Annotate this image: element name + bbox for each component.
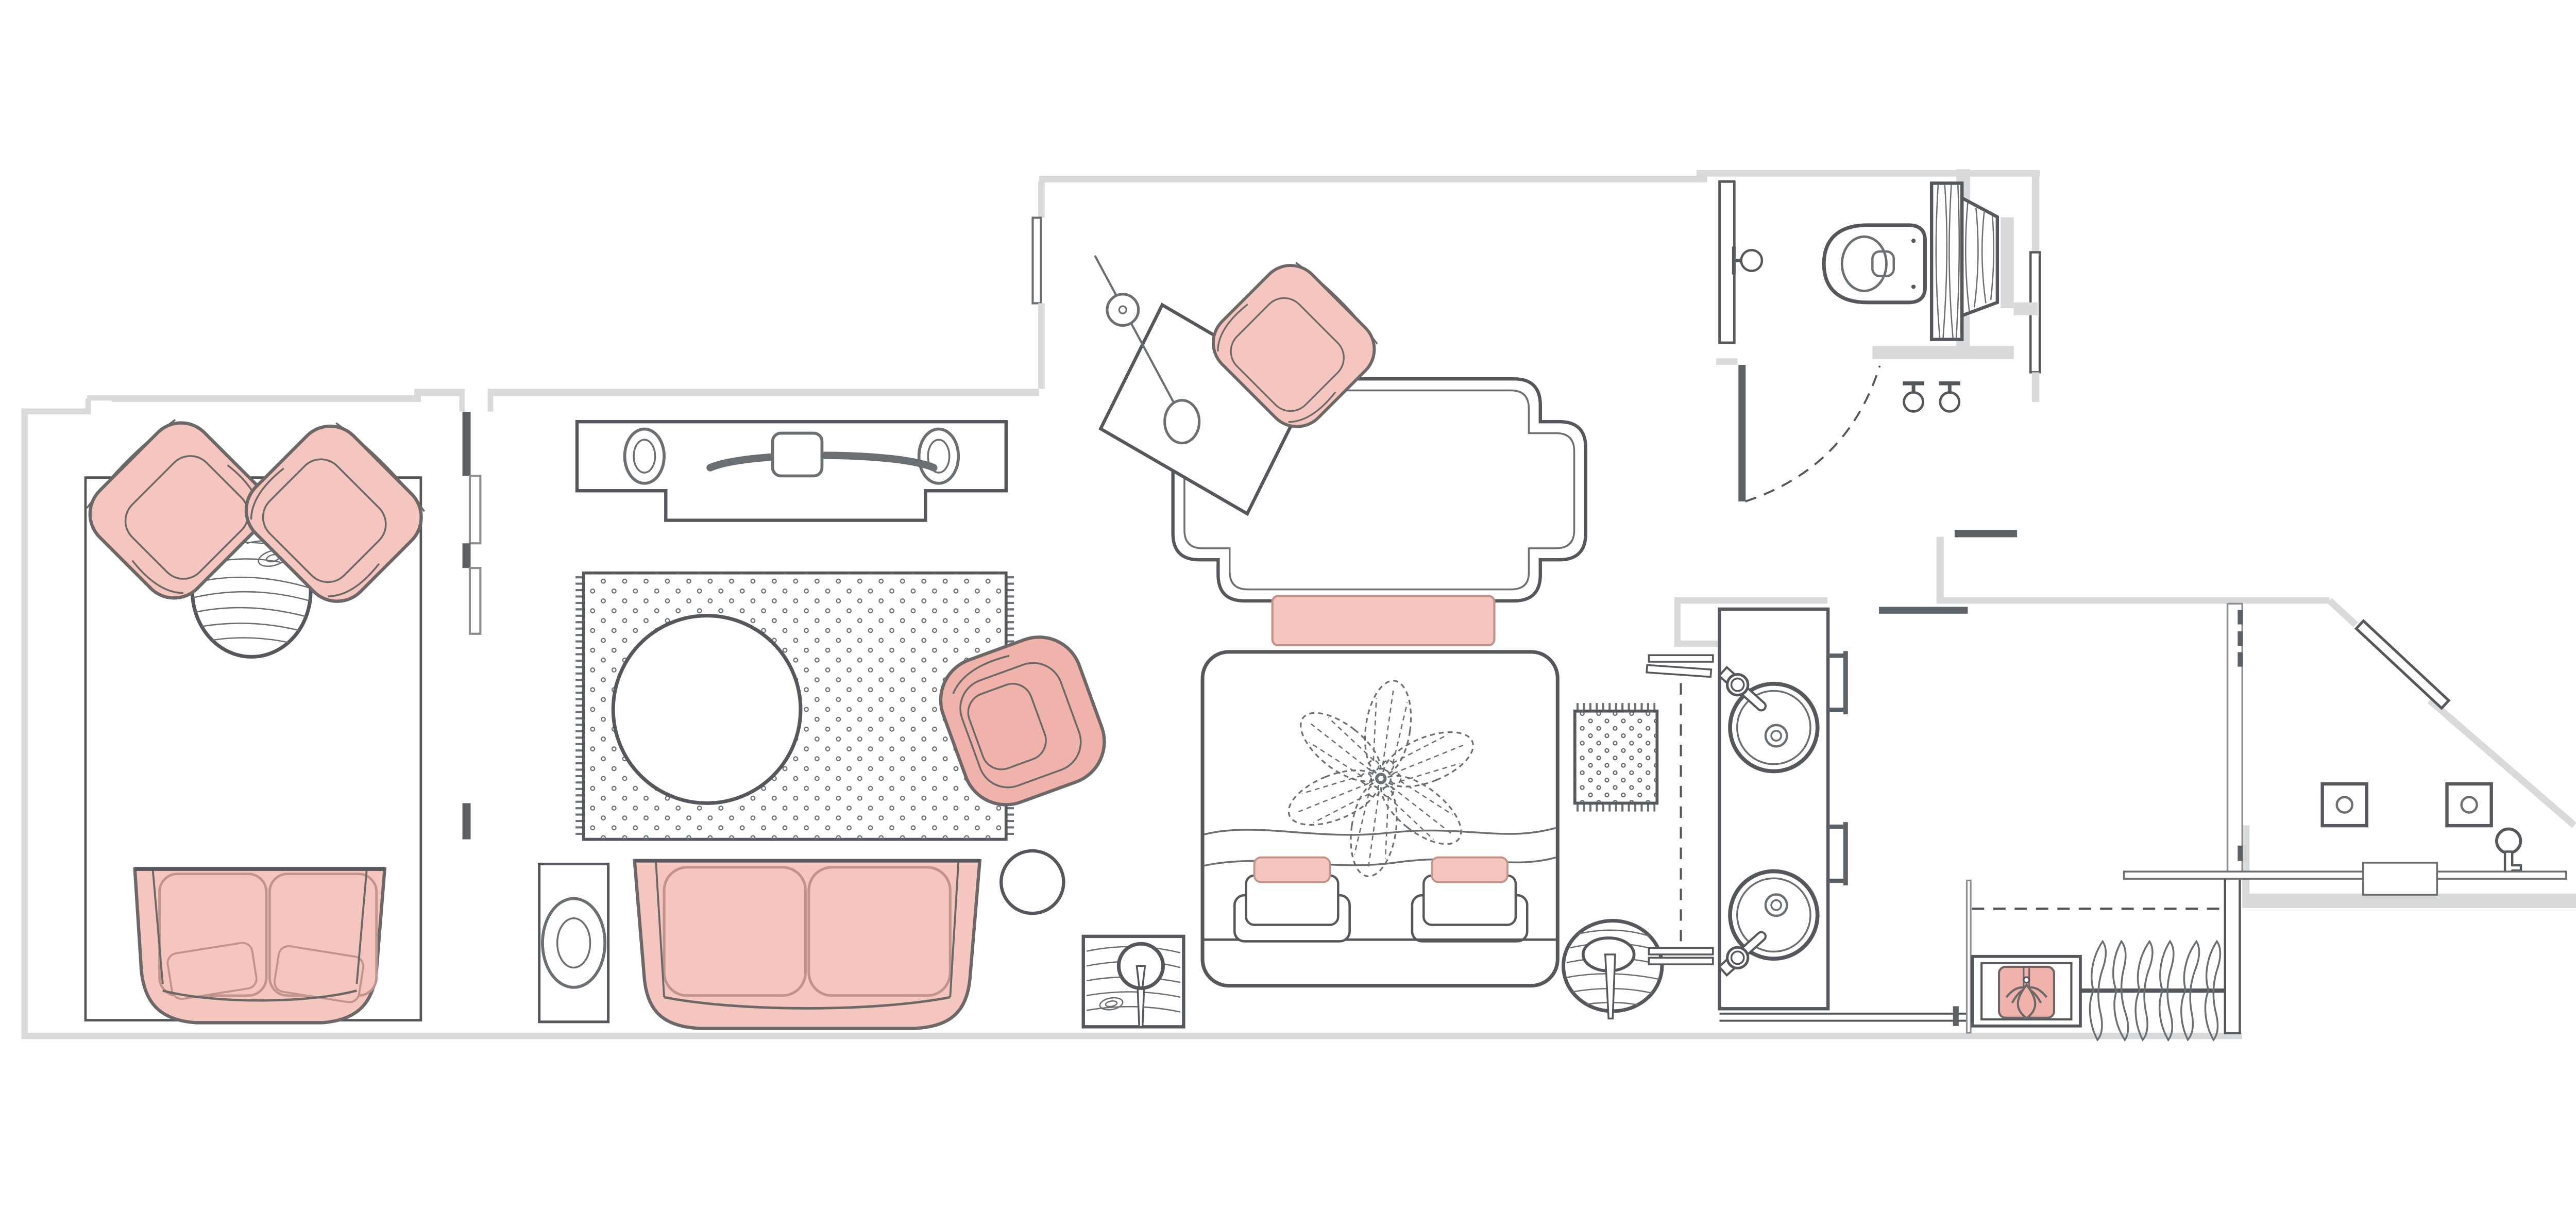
room-wc	[1720, 182, 1997, 502]
entry-door	[2356, 621, 2449, 708]
wall-patio-left	[21, 409, 27, 1040]
wall-shelf	[1649, 656, 1713, 662]
wall-entry-left	[2242, 826, 2249, 894]
side-table	[1001, 851, 1063, 913]
wall-nook-top	[1039, 176, 1697, 182]
entry-saddle	[2363, 863, 2437, 895]
door-leaf	[1738, 365, 1745, 501]
wc-door	[1738, 365, 1879, 501]
door-swing-arc	[1745, 366, 1880, 501]
wall-patio-top-left	[21, 409, 87, 414]
balcony-door-jamb-right	[488, 389, 494, 412]
wall-bed-right-stub	[1674, 604, 1681, 647]
accent-pillow	[1432, 858, 1507, 882]
partition-window-2	[470, 568, 480, 634]
nightstand-left	[1083, 936, 1184, 1027]
folded-shirt	[1999, 967, 2054, 1018]
partition-window-1	[470, 476, 480, 544]
wall-wc-bottom-left	[1716, 359, 1737, 365]
wall-patio-top-jog2	[86, 399, 91, 415]
wall-entry-bottom	[2242, 894, 2576, 908]
partition-segment-3	[463, 803, 471, 840]
seat-cushion	[664, 867, 805, 996]
closet-left-partition	[1967, 881, 1971, 1033]
wall-hook	[2238, 631, 2243, 646]
partition-segment-1	[463, 412, 471, 476]
room-desk-nook	[1095, 252, 1586, 601]
hook-icon	[1940, 393, 1959, 412]
wall-wc-bottom-right	[1872, 346, 2013, 359]
toilet	[1824, 225, 1925, 303]
bed-bench	[1273, 596, 1495, 646]
media-console	[577, 422, 1006, 520]
wall-wc-right-a	[2032, 177, 2039, 253]
wc-wood-panel	[1931, 183, 1997, 340]
runner-rug	[1575, 707, 1657, 808]
sofa	[635, 861, 980, 1028]
wall-bottom	[21, 1033, 2242, 1039]
wall-shelf	[1649, 958, 1713, 965]
closet-safe-unit	[1973, 957, 2080, 1026]
coffee-table	[613, 616, 801, 803]
seat-cushion	[809, 867, 950, 996]
partition-segment-2	[463, 544, 471, 568]
floor-plan: Hotel suite floor plan — top view	[0, 162, 2576, 1045]
nook-window	[1032, 218, 1041, 304]
wall-wc-top	[1706, 170, 2040, 177]
wall-nook-step	[1697, 170, 1707, 182]
room-closet	[1967, 604, 2242, 1041]
pocket-door-track-1	[1955, 530, 2017, 538]
wall-bath-bottom	[1674, 597, 1827, 603]
wall-shelf	[1649, 948, 1713, 954]
towel-ladder-bottom	[1828, 822, 1848, 885]
door-leaf	[2356, 621, 2449, 708]
closet-right-wall	[2225, 874, 2240, 1033]
toilet-paper-holder	[1732, 247, 1762, 275]
wall-entry-top	[1937, 597, 2330, 603]
switch-plate	[2323, 784, 2367, 826]
wall-living-top-a	[421, 389, 460, 396]
balcony-door-jamb-left	[460, 389, 465, 412]
wall-entry-stub	[1937, 537, 1944, 604]
room-living	[539, 422, 1116, 1028]
wall-bed-right-jog	[1674, 641, 1718, 647]
wall-living-top-b	[493, 389, 1039, 396]
wall-patio-top	[112, 395, 414, 402]
console-center-tray	[773, 433, 822, 476]
wall-wc-right-b	[2032, 373, 2039, 402]
pocket-door-track-2	[1879, 607, 1968, 614]
nightstand-right	[1563, 921, 1662, 1019]
wall-nook-left-a	[1038, 182, 1045, 218]
towel-ladder-top	[1828, 651, 1848, 715]
room-bedroom	[1083, 596, 1713, 1027]
wall-wc-niche-v	[2001, 217, 2014, 308]
wall-step	[414, 389, 421, 403]
patio-loveseat	[135, 869, 385, 1022]
room-patio	[75, 408, 436, 1022]
hook-icon	[1904, 393, 1923, 412]
wall-tick	[2238, 846, 2243, 861]
floor-lamp	[539, 864, 608, 1022]
wall-hook	[2238, 610, 2243, 625]
wall-patio-top-jog	[87, 395, 112, 400]
wall-entry-diagonal-a	[2329, 601, 2355, 625]
wall-hook	[2238, 652, 2243, 667]
wall-wc-niche-h	[2014, 303, 2038, 315]
entry-threshold	[2124, 871, 2566, 879]
key-icon	[2497, 829, 2521, 876]
rail-bracket	[1953, 1007, 1959, 1026]
wall-shelf	[1647, 665, 1711, 677]
switch-plate	[2447, 784, 2492, 826]
accent-pillow	[1255, 858, 1330, 882]
robe-hooks	[1903, 381, 1960, 411]
floor-plan-page: Hotel suite floor plan — top view	[0, 0, 2576, 1207]
wall-nook-left-b	[1038, 304, 1045, 389]
lamp-shade	[1165, 400, 1199, 443]
